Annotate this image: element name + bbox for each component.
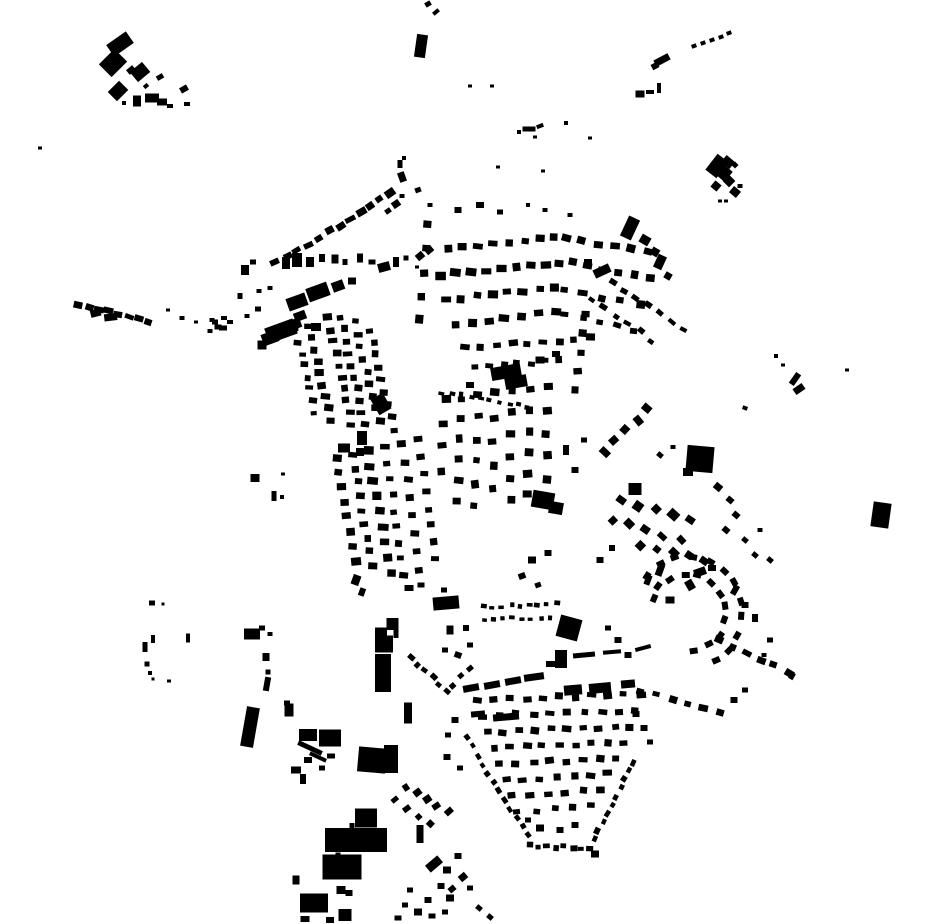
building xyxy=(314,358,323,364)
building xyxy=(292,253,302,267)
building xyxy=(437,442,447,449)
building xyxy=(533,136,537,139)
building xyxy=(562,759,570,766)
building xyxy=(392,523,400,529)
building xyxy=(304,757,312,763)
building xyxy=(337,483,347,490)
building xyxy=(455,853,462,859)
building xyxy=(393,257,399,267)
building xyxy=(605,626,611,631)
building xyxy=(543,407,553,415)
building xyxy=(616,296,624,303)
building xyxy=(572,467,579,473)
building xyxy=(459,392,464,397)
building xyxy=(387,569,396,577)
building xyxy=(535,234,544,242)
building xyxy=(385,636,393,653)
building xyxy=(620,691,627,696)
building xyxy=(666,597,675,604)
building xyxy=(724,200,728,203)
building xyxy=(604,739,612,747)
building xyxy=(359,521,368,527)
building xyxy=(845,369,849,372)
building xyxy=(530,727,539,735)
building xyxy=(517,313,526,321)
building xyxy=(470,502,477,509)
building xyxy=(437,467,445,475)
building xyxy=(435,272,446,280)
building xyxy=(357,508,365,513)
building xyxy=(536,825,544,832)
building xyxy=(454,476,464,484)
building xyxy=(293,876,300,885)
building xyxy=(612,724,619,731)
building xyxy=(497,210,503,215)
building xyxy=(300,774,306,784)
building xyxy=(340,499,349,506)
building xyxy=(151,635,155,643)
building xyxy=(544,791,553,797)
building xyxy=(496,712,504,719)
building xyxy=(568,213,573,217)
building xyxy=(442,395,452,403)
building xyxy=(738,184,743,188)
building xyxy=(598,709,607,715)
building xyxy=(530,760,538,766)
building xyxy=(372,492,381,500)
building xyxy=(545,756,555,764)
building xyxy=(489,606,494,610)
building xyxy=(425,507,432,513)
building xyxy=(221,316,227,320)
building xyxy=(369,393,377,401)
building xyxy=(238,293,243,299)
building xyxy=(523,490,532,497)
building xyxy=(682,572,690,578)
building xyxy=(495,760,503,766)
building xyxy=(442,648,448,653)
building xyxy=(449,268,461,277)
figure-ground-map xyxy=(0,0,930,924)
building xyxy=(281,473,285,476)
building xyxy=(552,805,559,811)
building xyxy=(539,695,548,701)
building xyxy=(380,539,389,546)
building xyxy=(544,602,549,606)
building xyxy=(364,535,371,542)
building xyxy=(438,883,445,889)
building xyxy=(564,684,583,696)
building xyxy=(325,828,387,852)
building xyxy=(471,364,478,369)
building xyxy=(577,350,584,356)
building xyxy=(596,755,605,763)
building xyxy=(167,104,173,108)
building xyxy=(525,818,531,823)
building xyxy=(364,369,371,375)
building xyxy=(104,313,118,322)
building xyxy=(149,601,155,606)
building xyxy=(541,261,552,269)
building xyxy=(505,744,514,750)
building xyxy=(458,396,465,402)
building xyxy=(476,202,484,208)
building xyxy=(184,102,190,106)
building xyxy=(578,847,584,851)
building xyxy=(210,318,215,322)
building xyxy=(444,754,451,760)
building xyxy=(405,585,414,591)
building xyxy=(689,647,698,654)
building xyxy=(560,843,566,848)
building xyxy=(481,268,491,274)
building xyxy=(610,242,620,249)
building xyxy=(571,386,578,394)
building xyxy=(453,498,461,505)
building xyxy=(657,83,661,93)
building xyxy=(300,361,308,367)
building xyxy=(343,339,351,345)
building xyxy=(341,385,348,392)
building xyxy=(496,265,506,272)
building xyxy=(473,243,483,250)
building xyxy=(870,501,891,528)
building xyxy=(488,290,499,298)
building xyxy=(490,462,498,470)
building xyxy=(586,846,593,852)
building xyxy=(511,760,519,767)
building xyxy=(647,740,653,745)
building xyxy=(227,320,233,324)
building xyxy=(439,420,448,427)
building xyxy=(143,642,148,652)
building xyxy=(524,448,533,456)
building xyxy=(593,241,603,249)
building xyxy=(543,451,552,460)
building xyxy=(473,437,481,444)
building xyxy=(180,316,185,320)
building xyxy=(541,358,548,363)
building xyxy=(355,809,377,828)
building xyxy=(490,85,494,88)
building xyxy=(394,618,399,638)
building xyxy=(257,289,262,293)
building xyxy=(359,356,366,363)
building xyxy=(310,347,317,354)
building xyxy=(324,404,334,412)
building xyxy=(348,278,356,285)
building xyxy=(560,311,568,317)
building xyxy=(272,491,277,501)
building xyxy=(356,492,365,499)
building xyxy=(505,453,514,460)
building xyxy=(526,427,533,435)
building xyxy=(570,336,577,342)
building xyxy=(285,704,294,717)
building xyxy=(507,496,515,504)
building xyxy=(530,712,539,719)
building xyxy=(523,127,536,132)
building xyxy=(467,886,473,891)
building xyxy=(369,260,376,265)
building xyxy=(415,266,419,269)
building xyxy=(215,325,222,330)
building xyxy=(300,894,328,913)
building xyxy=(259,626,265,631)
building xyxy=(350,375,357,381)
building xyxy=(519,617,524,621)
building xyxy=(572,822,579,828)
building xyxy=(167,680,171,683)
building xyxy=(420,471,428,477)
building xyxy=(527,842,534,848)
building xyxy=(506,475,515,482)
building xyxy=(545,710,555,716)
building xyxy=(384,745,398,773)
building xyxy=(553,773,560,780)
building xyxy=(457,415,465,422)
building xyxy=(351,557,362,566)
building xyxy=(614,269,622,277)
building xyxy=(542,475,551,484)
building xyxy=(485,363,493,369)
building xyxy=(473,457,480,464)
building xyxy=(456,295,464,303)
building xyxy=(541,170,545,173)
building xyxy=(320,393,330,400)
building xyxy=(365,380,374,387)
building xyxy=(758,528,763,532)
building xyxy=(683,468,693,476)
building xyxy=(460,344,470,351)
building xyxy=(371,339,378,346)
building xyxy=(496,166,500,169)
building xyxy=(375,654,391,692)
building xyxy=(465,267,477,276)
building xyxy=(521,238,529,245)
building xyxy=(580,787,588,794)
building xyxy=(361,421,370,428)
building xyxy=(498,729,507,736)
building xyxy=(395,916,402,921)
building xyxy=(431,556,439,561)
building xyxy=(415,314,424,324)
building xyxy=(551,308,561,316)
building xyxy=(615,637,622,643)
building xyxy=(621,679,636,688)
building xyxy=(346,422,355,428)
building xyxy=(445,733,451,738)
building xyxy=(304,324,313,329)
building xyxy=(145,662,150,667)
building xyxy=(402,156,406,160)
building xyxy=(352,466,360,473)
building xyxy=(291,767,301,774)
building xyxy=(555,356,562,363)
building xyxy=(625,724,633,731)
building xyxy=(311,411,317,416)
building xyxy=(446,895,454,902)
building xyxy=(334,469,342,476)
building xyxy=(356,410,365,415)
building xyxy=(506,430,515,437)
building xyxy=(423,220,432,228)
building xyxy=(568,257,577,266)
building xyxy=(517,288,528,296)
building xyxy=(563,709,571,716)
building xyxy=(432,595,459,610)
building xyxy=(347,363,355,369)
building xyxy=(368,562,377,569)
building xyxy=(523,341,530,347)
building xyxy=(489,485,497,493)
building xyxy=(554,260,563,268)
building xyxy=(395,540,403,547)
building xyxy=(587,802,595,808)
building xyxy=(342,396,350,403)
building xyxy=(466,382,474,388)
building xyxy=(526,261,536,268)
building xyxy=(602,770,612,776)
building xyxy=(554,600,560,605)
building xyxy=(385,401,392,407)
building xyxy=(556,338,564,345)
building xyxy=(390,428,397,434)
building xyxy=(491,745,498,752)
building xyxy=(415,567,423,574)
building xyxy=(314,369,323,376)
building xyxy=(447,626,454,635)
building xyxy=(581,438,587,443)
building xyxy=(456,434,463,443)
building xyxy=(280,495,284,499)
building xyxy=(548,725,556,731)
building xyxy=(255,307,261,312)
building xyxy=(537,742,545,748)
building xyxy=(570,845,577,851)
building xyxy=(301,916,310,922)
building xyxy=(526,386,535,393)
building xyxy=(467,643,473,648)
building xyxy=(508,408,516,416)
building xyxy=(738,612,745,620)
building xyxy=(346,528,355,536)
building xyxy=(478,714,487,719)
building xyxy=(430,538,438,546)
building xyxy=(364,446,374,455)
building xyxy=(241,265,249,275)
building xyxy=(516,402,522,407)
building xyxy=(528,361,535,367)
building xyxy=(346,890,353,896)
building xyxy=(416,453,425,460)
building xyxy=(399,572,408,579)
building xyxy=(350,823,355,829)
building xyxy=(543,208,548,212)
building xyxy=(145,94,159,103)
building xyxy=(587,740,594,746)
building xyxy=(299,729,317,741)
building xyxy=(408,512,416,518)
building xyxy=(543,843,550,848)
building xyxy=(397,555,404,560)
building xyxy=(429,914,436,919)
building xyxy=(374,365,382,371)
building xyxy=(364,463,375,471)
building xyxy=(488,240,498,246)
building xyxy=(308,334,315,341)
building xyxy=(518,604,523,609)
building xyxy=(319,254,325,262)
building xyxy=(578,757,587,763)
building xyxy=(509,615,515,619)
building xyxy=(548,615,552,620)
building xyxy=(365,547,373,554)
building xyxy=(587,692,597,698)
building xyxy=(375,507,385,515)
building xyxy=(671,445,676,449)
building xyxy=(468,319,477,327)
building xyxy=(593,725,602,732)
building xyxy=(563,445,569,455)
building xyxy=(515,727,523,733)
building xyxy=(513,360,520,366)
building xyxy=(338,444,350,453)
building xyxy=(407,888,413,893)
building xyxy=(251,474,260,482)
building xyxy=(630,328,638,334)
building xyxy=(386,476,393,481)
building xyxy=(513,809,520,815)
building xyxy=(718,200,722,203)
building xyxy=(629,483,642,495)
building xyxy=(452,717,459,723)
building xyxy=(560,286,568,293)
building xyxy=(258,341,267,350)
building xyxy=(410,530,419,537)
building xyxy=(550,233,558,241)
building xyxy=(524,405,529,410)
building xyxy=(503,288,512,294)
building xyxy=(721,601,728,610)
building xyxy=(162,603,165,606)
building xyxy=(306,257,314,267)
building xyxy=(442,910,448,915)
building xyxy=(354,384,363,391)
building xyxy=(383,461,391,467)
building xyxy=(414,909,422,916)
building xyxy=(422,488,430,494)
building xyxy=(268,632,273,636)
building xyxy=(397,440,406,448)
building xyxy=(401,459,410,466)
building xyxy=(263,653,270,661)
building xyxy=(553,845,559,851)
building xyxy=(630,270,639,279)
building xyxy=(319,766,325,771)
building xyxy=(337,886,346,894)
building xyxy=(208,329,213,333)
building xyxy=(505,239,513,246)
building xyxy=(569,804,577,811)
building xyxy=(293,340,301,346)
building xyxy=(564,121,568,125)
building xyxy=(508,339,518,346)
building xyxy=(546,661,566,667)
building xyxy=(458,243,467,250)
building xyxy=(596,319,603,325)
building xyxy=(291,326,298,331)
